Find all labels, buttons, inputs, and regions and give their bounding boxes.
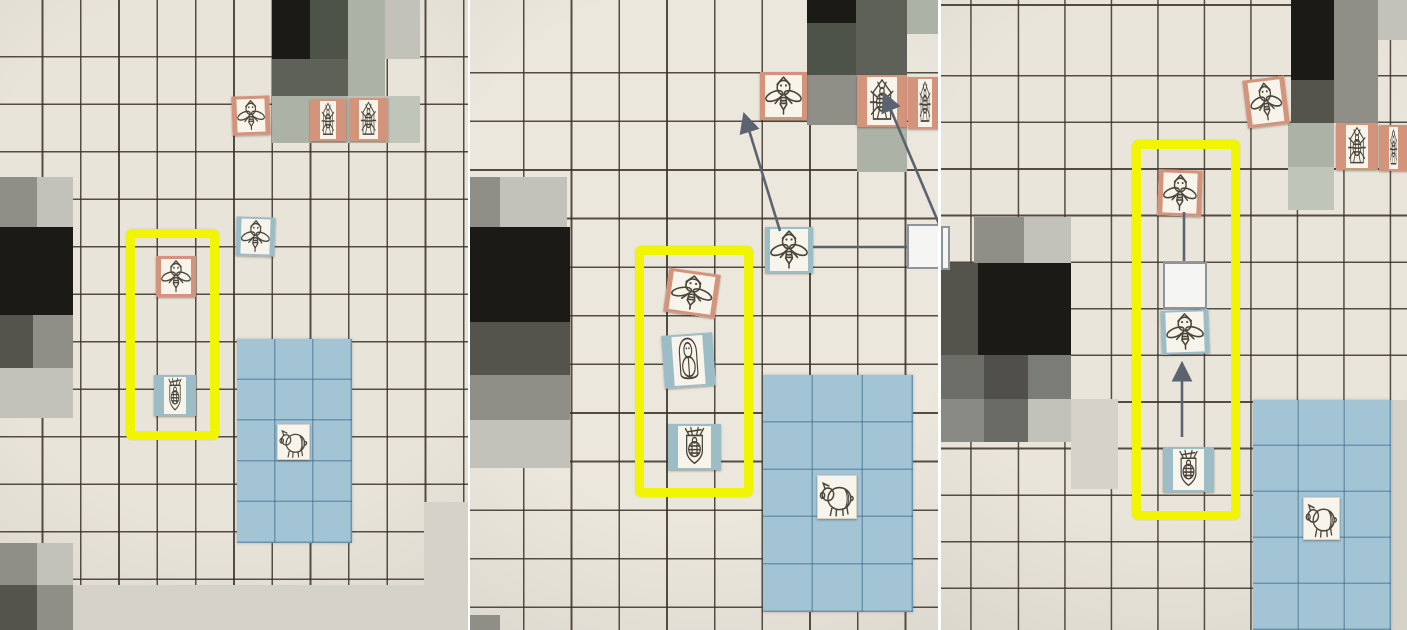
token-pig bbox=[817, 475, 857, 519]
shaded-cell bbox=[0, 585, 37, 630]
beetle-icon bbox=[867, 77, 897, 125]
shaded-cell bbox=[907, 0, 938, 34]
shaded-cell bbox=[424, 502, 468, 630]
white-square-marker bbox=[941, 226, 950, 270]
shaded-cell bbox=[1334, 0, 1378, 80]
wasp-icon bbox=[1248, 79, 1285, 125]
shaded-cell bbox=[272, 59, 348, 96]
shaded-cell bbox=[272, 0, 310, 59]
move-sequence-collage bbox=[0, 0, 1407, 630]
shaded-cell bbox=[470, 375, 570, 420]
shaded-cell bbox=[37, 543, 73, 585]
shaded-cell bbox=[978, 263, 1071, 355]
token-beetle bbox=[1336, 123, 1378, 170]
shaded-cell bbox=[941, 399, 984, 442]
shaded-cell bbox=[807, 0, 856, 23]
shaded-cell bbox=[984, 355, 1028, 399]
shaded-cell bbox=[984, 399, 1028, 442]
wasp-icon bbox=[765, 75, 802, 117]
shaded-cell bbox=[73, 585, 424, 630]
shaded-cell bbox=[0, 368, 73, 418]
token-beetle bbox=[1379, 125, 1407, 171]
yellow-highlight-rectangle bbox=[635, 246, 753, 497]
shaded-cell bbox=[385, 0, 420, 59]
token-wasp bbox=[1242, 76, 1290, 129]
board-photo-step-1 bbox=[0, 0, 468, 630]
shaded-cell bbox=[1024, 217, 1071, 263]
shaded-cell bbox=[470, 177, 500, 227]
board-photo-step-3 bbox=[941, 0, 1407, 630]
wasp-icon bbox=[236, 99, 265, 133]
token-wasp bbox=[760, 72, 807, 120]
beetle-icon bbox=[918, 79, 932, 127]
token-beetle bbox=[908, 77, 938, 129]
shaded-cell bbox=[0, 227, 73, 315]
shaded-cell bbox=[856, 0, 907, 75]
shaded-cell bbox=[0, 177, 37, 227]
yellow-highlight-rectangle bbox=[1132, 140, 1240, 520]
token-beetle bbox=[857, 75, 907, 127]
shaded-cell bbox=[470, 615, 500, 630]
shaded-cell bbox=[941, 263, 978, 355]
shaded-cell bbox=[807, 23, 856, 75]
wasp-icon bbox=[770, 229, 808, 271]
token-pig bbox=[277, 424, 310, 460]
shaded-cell bbox=[470, 227, 570, 322]
shaded-cell bbox=[1028, 355, 1071, 399]
token-wasp bbox=[231, 95, 270, 135]
shaded-cell bbox=[348, 0, 385, 96]
shaded-cell bbox=[1378, 0, 1407, 40]
yellow-highlight-rectangle bbox=[126, 229, 219, 440]
shaded-cell bbox=[1391, 400, 1407, 630]
token-pig bbox=[1303, 497, 1340, 540]
shaded-cell bbox=[941, 355, 984, 399]
shaded-cell bbox=[1334, 80, 1378, 123]
beetle-icon bbox=[1346, 125, 1368, 168]
pig-icon bbox=[278, 425, 309, 459]
shaded-cell bbox=[37, 585, 73, 630]
shaded-cell bbox=[37, 177, 73, 227]
board-photo-step-2 bbox=[470, 0, 938, 630]
beetle-icon bbox=[359, 100, 378, 139]
shaded-cell bbox=[974, 217, 1024, 263]
token-beetle bbox=[349, 98, 388, 141]
token-beetle bbox=[310, 99, 346, 141]
shaded-cell bbox=[500, 177, 567, 227]
shaded-cell bbox=[1288, 123, 1334, 167]
shaded-cell bbox=[1291, 0, 1334, 80]
token-wasp bbox=[765, 227, 813, 273]
beetle-icon bbox=[320, 101, 336, 139]
shaded-cell bbox=[470, 322, 570, 375]
shaded-cell bbox=[857, 127, 907, 172]
shaded-cell bbox=[1071, 399, 1118, 489]
shaded-cell bbox=[0, 543, 37, 585]
shaded-cell bbox=[1288, 167, 1334, 210]
shaded-cell bbox=[310, 0, 348, 59]
pig-icon bbox=[1304, 498, 1339, 539]
shaded-cell bbox=[1291, 80, 1334, 123]
shaded-cell bbox=[1028, 399, 1071, 442]
shaded-cell bbox=[0, 315, 33, 368]
shaded-cell bbox=[807, 75, 857, 125]
white-square-marker bbox=[907, 224, 938, 269]
pig-icon bbox=[818, 476, 856, 518]
beetle-icon bbox=[1389, 127, 1398, 169]
wasp-icon bbox=[240, 219, 270, 255]
shaded-cell bbox=[470, 420, 570, 468]
shaded-cell bbox=[33, 315, 73, 368]
token-wasp bbox=[235, 216, 275, 256]
